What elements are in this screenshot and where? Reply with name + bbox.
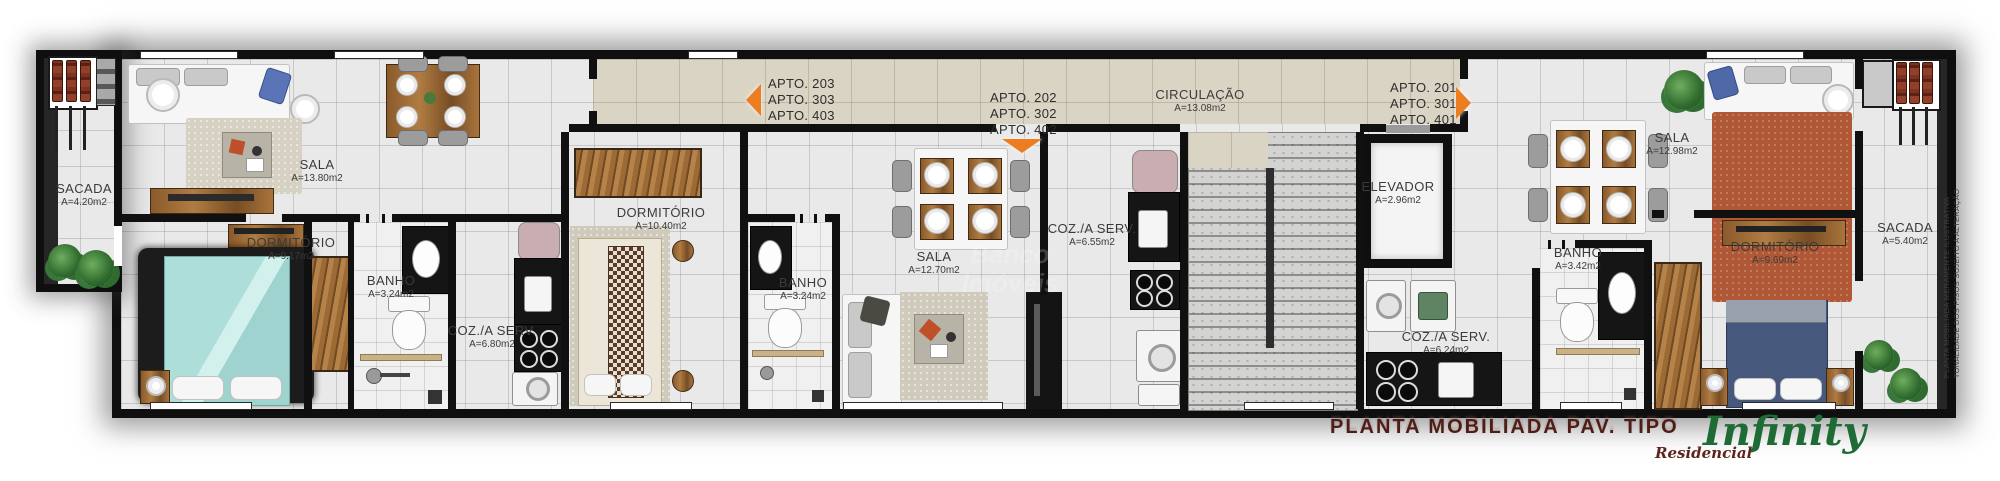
tv-sideboard xyxy=(1722,220,1846,246)
grill-skewer-icon xyxy=(80,60,91,102)
plant xyxy=(78,250,114,286)
wardrobe xyxy=(308,256,352,372)
terracotta-rug xyxy=(1712,112,1852,302)
sign-line: APTO. 202 xyxy=(990,90,1057,106)
dining-chair xyxy=(1648,134,1668,168)
wall xyxy=(589,111,597,132)
balcony-cabinet xyxy=(1862,60,1894,108)
disclaimer-line2: TONALIDADE DOS PISOS SUJEITO A ALTERAÇÃO xyxy=(1952,198,1962,378)
skewer-handle xyxy=(55,106,58,150)
toilet-bowl xyxy=(1560,302,1594,342)
sofa-cushion xyxy=(184,68,228,86)
burner xyxy=(540,350,558,368)
dining-chair xyxy=(1010,160,1030,192)
refrigerator xyxy=(1132,150,1178,194)
skewer-handle xyxy=(69,106,72,150)
plate xyxy=(924,162,950,188)
tv xyxy=(168,194,254,201)
elevator-cab xyxy=(1362,134,1452,268)
dining-chair xyxy=(892,160,912,192)
shower-head xyxy=(760,366,774,380)
plate xyxy=(1560,136,1586,162)
tv xyxy=(1736,226,1826,232)
wall xyxy=(1694,210,1863,218)
wall xyxy=(561,132,569,409)
shower-arm xyxy=(380,373,410,377)
bath-sink xyxy=(1608,272,1636,314)
washer-drum xyxy=(1376,293,1402,319)
plate xyxy=(444,74,466,96)
skewer-handle xyxy=(1899,107,1902,145)
round-stool xyxy=(672,370,694,392)
refrigerator xyxy=(518,222,560,260)
watermark-line1: Banco xyxy=(940,240,1080,269)
wall xyxy=(1356,132,1364,409)
pillow xyxy=(620,374,652,396)
wall xyxy=(589,59,597,79)
decor-box xyxy=(229,139,246,156)
door-tick xyxy=(1548,240,1551,249)
wall xyxy=(1652,210,1664,218)
burner xyxy=(520,350,538,368)
green-sink xyxy=(1418,292,1448,320)
towel-bar xyxy=(360,354,442,361)
washer-drum xyxy=(526,377,550,401)
kitchen-sink xyxy=(1438,362,1474,398)
pillow xyxy=(172,376,224,400)
window xyxy=(1706,51,1804,59)
plate xyxy=(1560,192,1586,218)
centerpiece-plant xyxy=(424,92,436,104)
plate xyxy=(444,106,466,128)
plate xyxy=(396,106,418,128)
sofa-cushion xyxy=(1744,66,1786,84)
table-lamp xyxy=(1706,374,1724,392)
skewer-handle xyxy=(1912,107,1915,145)
toilet-bowl xyxy=(768,308,802,348)
pillow xyxy=(1734,378,1776,400)
dining-chair xyxy=(892,206,912,238)
apto-201-sign: APTO. 201 APTO. 301 APTO. 401 xyxy=(1390,80,1457,128)
dining-chair xyxy=(1528,188,1548,222)
wall xyxy=(1855,59,1863,89)
wall xyxy=(1575,240,1652,248)
window xyxy=(334,51,424,59)
pillow xyxy=(1780,378,1822,400)
burner xyxy=(1376,382,1396,402)
balcony-door-opening xyxy=(114,226,122,266)
sign-line: APTO. 302 xyxy=(990,106,1057,122)
pillow xyxy=(230,376,282,400)
table-lamp xyxy=(1832,374,1850,392)
grill-skewer-icon xyxy=(1922,62,1933,104)
apto-203-arrow-left-icon xyxy=(746,84,761,116)
watermark-line2: Imóveis xyxy=(940,269,1080,298)
burner xyxy=(1156,274,1173,291)
logo-subtitle: Residencial xyxy=(1655,446,1752,461)
sign-line: APTO. 402 xyxy=(990,122,1057,138)
window xyxy=(610,402,692,410)
floor-lamp xyxy=(146,78,180,112)
wall xyxy=(121,214,246,222)
tv-sideboard xyxy=(150,188,274,214)
door-tick xyxy=(366,214,369,223)
apto-201-arrow-right-icon xyxy=(1456,87,1471,119)
plate xyxy=(972,162,998,188)
wall xyxy=(392,214,561,222)
dining-chair xyxy=(438,56,468,72)
sign-line: APTO. 303 xyxy=(768,92,835,108)
media-wall xyxy=(1026,292,1062,409)
plant xyxy=(1664,70,1704,110)
decor-bowl xyxy=(252,146,262,156)
dining-chair xyxy=(1010,206,1030,238)
burner xyxy=(1398,360,1418,380)
stair-divider xyxy=(1266,168,1274,348)
sign-line: APTO. 301 xyxy=(1390,96,1457,112)
stair-landing xyxy=(1188,132,1268,168)
grill-skewer-icon xyxy=(1909,62,1920,104)
wall xyxy=(1180,132,1188,409)
door-tick xyxy=(800,214,803,223)
floor-plan-scene: Banco Imóveis SACADA A=4.20m2 SALA A=13.… xyxy=(0,0,2000,481)
sign-line: APTO. 403 xyxy=(768,108,835,124)
wardrobe xyxy=(574,148,702,198)
wall xyxy=(1360,124,1386,132)
towel-bar xyxy=(752,350,824,357)
wall xyxy=(1460,59,1468,79)
burner xyxy=(540,330,558,348)
wall xyxy=(740,132,748,409)
burner xyxy=(1156,290,1173,307)
towel-bar xyxy=(1556,348,1640,355)
bed-fold xyxy=(1726,300,1826,323)
decor-bowl xyxy=(946,332,956,342)
wall xyxy=(448,222,456,409)
wall xyxy=(282,214,304,222)
window xyxy=(1244,402,1334,410)
decor-book xyxy=(246,158,264,172)
burner xyxy=(1136,290,1153,307)
grill-skewer-icon xyxy=(1896,62,1907,104)
wall xyxy=(1855,131,1863,281)
plate xyxy=(972,208,998,234)
window xyxy=(1560,402,1622,410)
wall xyxy=(304,222,312,409)
burner xyxy=(1376,360,1396,380)
skewer-handle xyxy=(83,106,86,150)
toilet-bowl xyxy=(392,310,426,350)
plant xyxy=(1864,340,1894,370)
wall xyxy=(1855,351,1863,409)
wall xyxy=(832,222,840,409)
sign-line: APTO. 401 xyxy=(1390,112,1457,128)
burner xyxy=(1136,274,1153,291)
plant xyxy=(1890,368,1922,400)
laundry-tub xyxy=(1138,384,1180,406)
pillow xyxy=(584,374,616,396)
sign-line: APTO. 201 xyxy=(1390,80,1457,96)
logo: Infinity Residencial xyxy=(1655,408,1895,472)
tv xyxy=(1034,304,1040,396)
window xyxy=(688,51,738,59)
kitchen-sink xyxy=(1138,210,1168,248)
plan-caption: PLANTA MOBILIADA PAV. TIPO xyxy=(1330,416,1670,439)
burner xyxy=(520,330,538,348)
apto-202-sign: APTO. 202 APTO. 302 APTO. 402 xyxy=(990,90,1057,138)
dining-chair xyxy=(438,130,468,146)
sofa-cushion xyxy=(1790,66,1832,84)
wall xyxy=(1046,124,1180,132)
grill-skewer-icon xyxy=(52,60,63,102)
photo-watermark: Banco Imóveis xyxy=(940,240,1080,297)
window xyxy=(843,402,1003,410)
disclaimer-line1: PLANTA MOBILIADA MERAMENTE ILUSTRATIVA xyxy=(1942,198,1952,378)
dining-chair xyxy=(398,130,428,146)
grill-skewer-icon xyxy=(66,60,77,102)
balcony-shelf xyxy=(96,58,116,106)
door-tick xyxy=(1562,240,1565,249)
stair-flight-left xyxy=(1192,168,1266,406)
wall xyxy=(825,214,840,222)
shower-drain xyxy=(812,390,824,402)
window xyxy=(140,51,238,59)
shower-drain xyxy=(1624,388,1636,400)
door-tick xyxy=(814,214,817,223)
apto-203-sign: APTO. 203 APTO. 303 APTO. 403 xyxy=(768,76,835,124)
door-tick xyxy=(382,214,385,223)
plant xyxy=(48,244,82,278)
burner xyxy=(1398,382,1418,402)
wall xyxy=(748,214,795,222)
window xyxy=(150,402,252,410)
washer-drum xyxy=(1148,344,1176,372)
kitchen-sink xyxy=(524,276,552,312)
decor-book xyxy=(930,344,948,358)
skewer-handle xyxy=(1925,107,1928,145)
sofa-cushion xyxy=(848,352,872,398)
shower-drain xyxy=(428,390,442,404)
table-lamp xyxy=(146,376,166,396)
bath-sink xyxy=(758,240,782,274)
wall xyxy=(1644,240,1652,409)
sign-line: APTO. 203 xyxy=(768,76,835,92)
bath-sink xyxy=(412,240,440,278)
plate xyxy=(1606,136,1632,162)
wall xyxy=(1532,268,1540,409)
disclaimer-text: PLANTA MOBILIADA MERAMENTE ILUSTRATIVA T… xyxy=(1942,198,1962,378)
wardrobe xyxy=(1654,262,1702,410)
apto-202-arrow-down-icon xyxy=(1002,139,1042,153)
dining-chair xyxy=(1528,134,1548,168)
plate xyxy=(396,74,418,96)
round-stool xyxy=(672,240,694,262)
wall xyxy=(304,214,360,222)
plate xyxy=(1606,192,1632,218)
wall xyxy=(569,124,996,132)
plate xyxy=(924,208,950,234)
bedroom-tv xyxy=(234,228,294,234)
wall xyxy=(348,222,354,409)
